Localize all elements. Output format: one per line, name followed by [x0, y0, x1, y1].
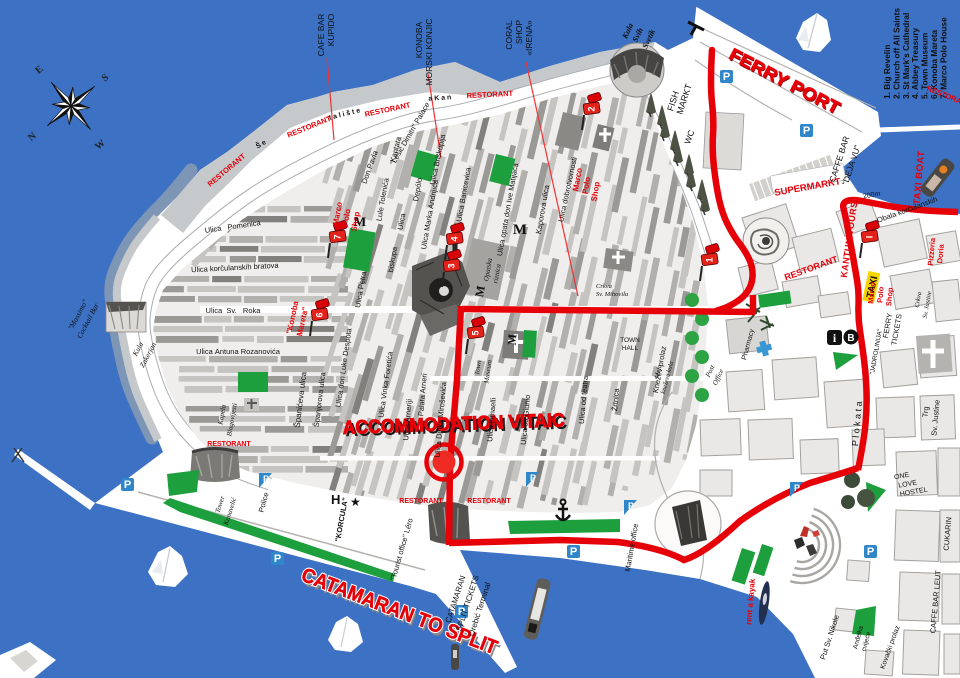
svg-text:7: 7 — [333, 234, 343, 239]
svg-text:KONOBA: KONOBA — [414, 21, 424, 58]
svg-text:Trg: Trg — [921, 406, 931, 418]
svg-text:MORSKI KONJIC: MORSKI KONJIC — [424, 18, 434, 85]
svg-text:CAFE BAR: CAFE BAR — [316, 14, 326, 57]
svg-text:5: 5 — [471, 330, 481, 335]
svg-text:P: P — [628, 501, 634, 511]
svg-text:M: M — [505, 333, 520, 346]
svg-text:6: 6 — [315, 312, 325, 317]
svg-text:B: B — [847, 333, 854, 344]
svg-text:★: ★ — [350, 495, 361, 509]
svg-text:P: P — [794, 483, 800, 493]
svg-text:P: P — [263, 474, 269, 484]
svg-text:Shop: Shop — [884, 287, 895, 307]
svg-text:1: 1 — [705, 257, 715, 262]
svg-text:M: M — [472, 285, 488, 299]
svg-text:P: P — [530, 473, 536, 483]
svg-text:Crkva: Crkva — [596, 283, 612, 290]
svg-text:7. Marco Polo House: 7. Marco Polo House — [938, 17, 948, 99]
svg-text:P: P — [723, 71, 730, 83]
svg-text:P: P — [570, 546, 577, 558]
svg-text:CORAL: CORAL — [504, 20, 514, 50]
svg-text:«IRENA»: «IRENA» — [524, 20, 534, 56]
svg-text:RESTORANT: RESTORANT — [207, 441, 251, 448]
svg-text:Sv. Mihovila: Sv. Mihovila — [596, 291, 628, 298]
svg-text:Ulica Antuna Rozanovića: Ulica Antuna Rozanovića — [196, 347, 281, 356]
svg-text:P: P — [803, 125, 810, 137]
svg-text:P: P — [124, 479, 131, 491]
svg-text:P: P — [867, 546, 874, 558]
svg-text:M: M — [354, 214, 366, 229]
svg-text:RESTORANT: RESTORANT — [399, 498, 443, 505]
svg-text:SHOP: SHOP — [514, 20, 524, 44]
svg-text:3: 3 — [447, 263, 457, 268]
svg-text:Doria: Doria — [935, 243, 946, 264]
svg-text:KUPIDO: KUPIDO — [326, 13, 336, 46]
svg-text:M: M — [513, 222, 527, 238]
svg-text:RESTORANT: RESTORANT — [467, 498, 511, 505]
svg-text:HALL: HALL — [622, 345, 639, 352]
svg-text:P: P — [274, 553, 281, 565]
svg-text:TOWN: TOWN — [620, 337, 640, 344]
svg-text:2: 2 — [587, 106, 597, 111]
svg-text:4: 4 — [450, 236, 460, 241]
svg-text:Ulica Sv. Roka: Ulica Sv. Roka — [206, 306, 262, 315]
svg-text:I: I — [865, 236, 875, 239]
